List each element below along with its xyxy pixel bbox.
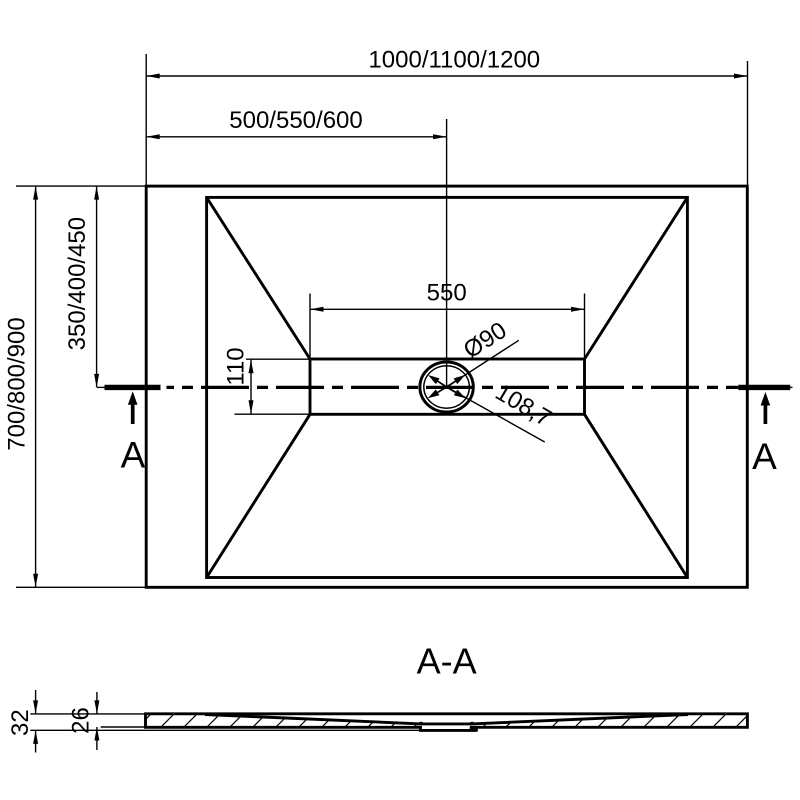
svg-text:26: 26 (67, 707, 94, 734)
svg-text:A-A: A-A (417, 641, 477, 682)
svg-text:350/400/450: 350/400/450 (64, 217, 91, 350)
svg-text:550: 550 (427, 279, 467, 306)
svg-text:500/550/600: 500/550/600 (229, 107, 362, 134)
svg-text:700/800/900: 700/800/900 (4, 317, 31, 450)
svg-text:A: A (121, 435, 146, 476)
svg-text:32: 32 (7, 709, 34, 736)
svg-text:A: A (752, 436, 777, 477)
svg-text:1000/1100/1200: 1000/1100/1200 (368, 47, 540, 74)
svg-text:110: 110 (223, 347, 250, 385)
